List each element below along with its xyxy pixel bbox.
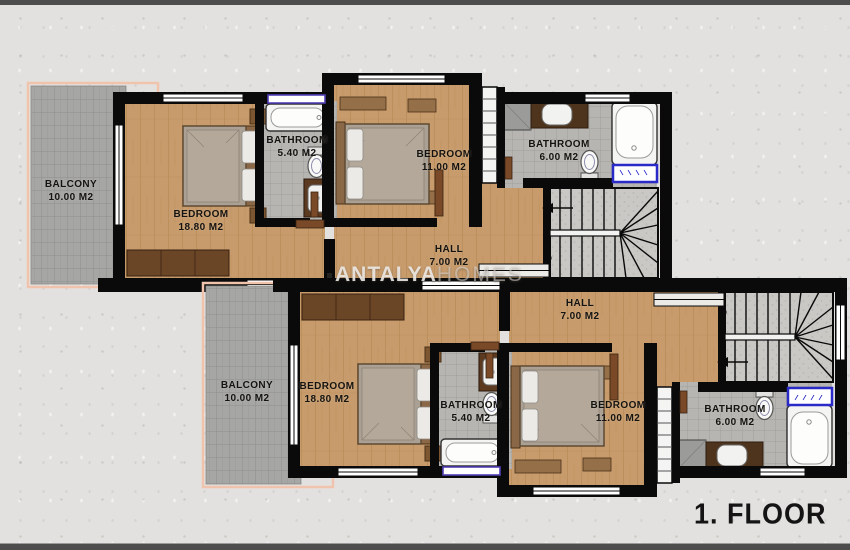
room-label-balcony-upper: BALCONY10.00 M2 <box>45 179 97 204</box>
window-right-lower <box>836 305 845 360</box>
room-label-bathroom-small-lower: BATHROOM5.40 M2 <box>440 400 501 425</box>
floor-title: 1. FLOOR <box>694 498 827 531</box>
room-label-bedroom-large-lower: BEDROOM18.80 M2 <box>299 381 354 406</box>
room-label-bathroom-large-lower: BATHROOM6.00 M2 <box>704 404 765 429</box>
watermark-brand-bold: ANTALYA <box>335 263 437 287</box>
room-label-balcony-lower: BALCONY10.00 M2 <box>221 380 273 405</box>
unit-upper <box>28 73 672 292</box>
room-label-bedroom-small-upper: BEDROOM11.00 M2 <box>416 149 471 174</box>
room-label-bedroom-large-upper: BEDROOM18.80 M2 <box>173 209 228 234</box>
floorplan-canvas: BALCONY10.00 M2 BEDROOM18.80 M2 BATHROOM… <box>0 0 850 550</box>
room-label-hall-lower: HALL7.00 M2 <box>561 298 600 323</box>
watermark-brand-light: HOMES <box>437 263 524 287</box>
room-label-bathroom-large-upper: BATHROOM6.00 M2 <box>528 139 589 164</box>
bottom-frame-bar <box>0 543 850 550</box>
watermark: ANTALYA HOMES <box>327 263 524 287</box>
room-label-bathroom-small-upper: BATHROOM5.40 M2 <box>266 135 327 160</box>
room-label-bedroom-small-lower: BEDROOM11.00 M2 <box>590 400 645 425</box>
watermark-bullet-icon <box>327 273 332 278</box>
